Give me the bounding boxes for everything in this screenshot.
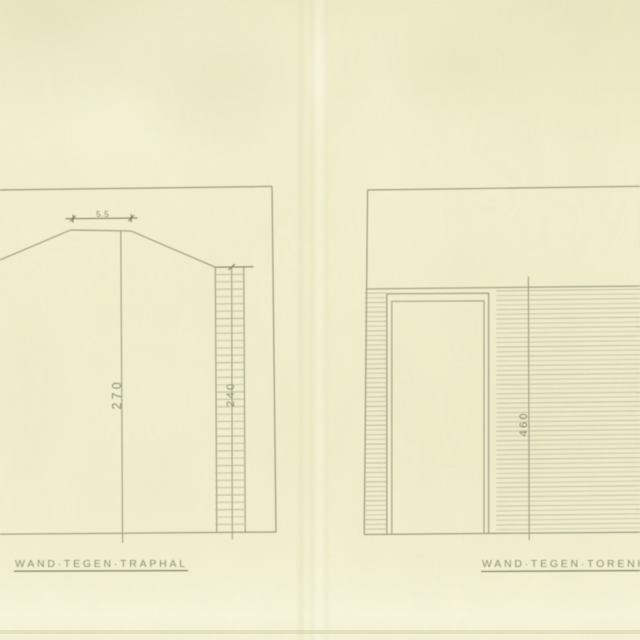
svg-text:240: 240	[225, 381, 237, 407]
svg-text:460: 460	[518, 411, 530, 437]
svg-text:5.5: 5.5	[96, 209, 109, 219]
svg-text:WAND·TEGEN·TORENK: WAND·TEGEN·TORENK	[482, 558, 640, 570]
svg-text:WAND·TEGEN·TRAPHAL: WAND·TEGEN·TRAPHAL	[15, 558, 188, 570]
svg-text:270: 270	[110, 379, 124, 409]
